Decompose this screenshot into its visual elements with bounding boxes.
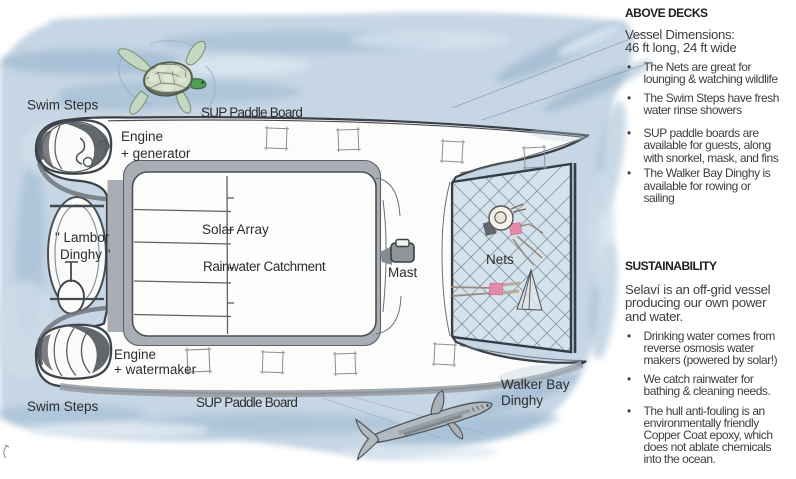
svg-text:Dinghy: Dinghy xyxy=(501,393,543,408)
svg-text:SUP Paddle Board: SUP Paddle Board xyxy=(196,395,297,410)
svg-text:Engine: Engine xyxy=(114,347,156,362)
svg-text:Rainwater Catchment: Rainwater Catchment xyxy=(203,259,326,274)
svg-text:+ watermaker: + watermaker xyxy=(114,362,197,377)
svg-text:Swim Steps: Swim Steps xyxy=(27,399,99,414)
svg-text:" Lambor: " Lambor xyxy=(55,230,110,245)
svg-text:Solar Array: Solar Array xyxy=(202,222,269,237)
svg-text:+ generator: + generator xyxy=(121,146,191,161)
svg-text:Swim Steps: Swim Steps xyxy=(27,98,99,113)
svg-text:Engine: Engine xyxy=(121,129,163,144)
svg-text:SUP Paddle Board: SUP Paddle Board xyxy=(201,105,302,120)
svg-text:Mast: Mast xyxy=(388,265,418,280)
svg-text:Nets: Nets xyxy=(486,252,514,267)
svg-text:Walker Bay: Walker Bay xyxy=(501,377,570,392)
svg-text:Dinghy ": Dinghy " xyxy=(60,247,111,262)
